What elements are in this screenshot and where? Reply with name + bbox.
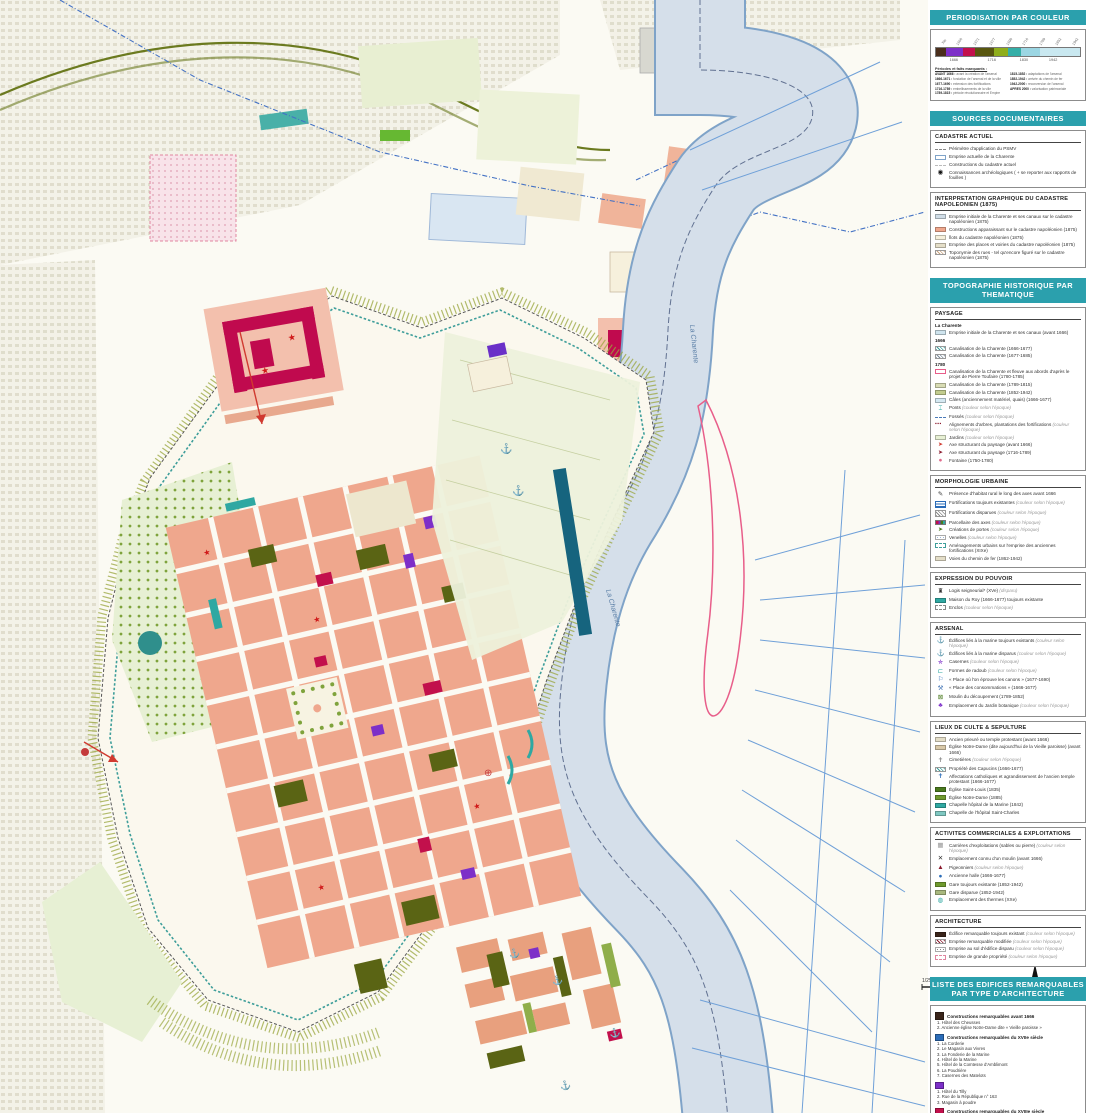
legend-item-note: (couleur selon l'époque) <box>989 527 1039 532</box>
legend-item: Câles (anciennement matériel, quais) (16… <box>935 397 1081 403</box>
legend-item: Canalisation de la Charente et fleuve au… <box>935 369 1081 380</box>
radoub-icon: ⊏ <box>935 669 946 675</box>
legend-item: ⚓Édifices liés à la marine disparus (cou… <box>935 651 1081 658</box>
legend-item: Ancien prieuré ou temple protestant (ava… <box>935 737 1081 743</box>
legend-item-label: Emprise initiale de la Charente et ses c… <box>949 214 1081 225</box>
legend-item: Constructions apparaissant sur le cadast… <box>935 227 1081 233</box>
legend-swatch <box>935 346 946 351</box>
legend-item-note: (couleur selon l'époque) <box>1007 954 1057 959</box>
legend-item-note: (couleur selon l'époque) <box>973 865 1023 870</box>
legend-item-label: Moulin du découpement (1789-1852) <box>949 694 1024 700</box>
bridge-icon: ⌶ <box>935 406 946 412</box>
legend-item-label: Ponts (couleur selon l'époque) <box>949 405 1011 411</box>
legend-item: Canalisation de la Charente (1852-1942) <box>935 390 1081 396</box>
legend-item: ➤Créations de portes (couleur selon l'ép… <box>935 527 1081 533</box>
arrow-icon: ➤ <box>935 443 946 448</box>
target-icon: ◉ <box>935 170 946 176</box>
legend-section: EXPRESSION DU POUVOIR♜Logis seigneurial*… <box>930 572 1086 617</box>
legend-swatch <box>935 417 946 418</box>
edifice-list-item: 7. Casernes des Matelots <box>937 1073 1081 1078</box>
legend-item-label: « Place des consommations » (1666-1677) <box>949 685 1037 691</box>
legend-swatch <box>935 250 946 255</box>
legend-item: Toponymie des rues - tel qu'encore figur… <box>935 250 1081 261</box>
legend-item-label: Casernes (couleur selon l'époque) <box>949 659 1019 665</box>
period-year-label: 1716 <box>988 58 996 62</box>
legend-item: Fossés (couleur selon l'époque) <box>935 414 1081 420</box>
legend-swatch <box>935 214 946 219</box>
legend-section-title: INTERPRETATION GRAPHIQUE DU CADASTRE NAP… <box>935 196 1081 211</box>
legend-item-label: Canalisation de la Charente (1852-1942) <box>949 390 1032 396</box>
legend-item: ◍Emplacement des thermes (XXe) <box>935 897 1081 904</box>
legend-item: ➤Axe structurant du paysage (avant 1666) <box>935 442 1081 448</box>
circle-icon: ● <box>935 874 946 880</box>
legend-item-label: Ancien prieuré ou temple protestant (ava… <box>949 737 1049 743</box>
legend-item-label: Câles (anciennement matériel, quais) (16… <box>949 397 1051 403</box>
periodisation-footnote-title: Périodes et faits marquants : <box>935 67 1081 71</box>
legend-item: Enclos (couleur selon l'époque) <box>935 605 1081 611</box>
periodisation-footnote: 1789-1815 : période révolutionnaire et E… <box>935 91 1006 95</box>
legend-item-label: Édifice remarquable toujours existant (c… <box>949 931 1075 937</box>
legend-item: Jardins (couleur selon l'époque) <box>935 435 1081 441</box>
legend-header: TOPOGRAPHIE HISTORIQUE PAR THEMATIQUE <box>930 278 1086 303</box>
legend-header: SOURCES DOCUMENTAIRES <box>930 111 1086 126</box>
mill-icon: ⊠ <box>935 695 946 701</box>
legend-item-label: Emprise au sol d'édifice disparu (couleu… <box>949 946 1064 952</box>
legend-header-periodisation: PERIODISATION PAR COULEUR <box>930 10 1086 25</box>
legend-item-label: Gare disparue (1852-1942) <box>949 890 1004 896</box>
edifice-group-swatch <box>935 1108 944 1113</box>
legend-swatch <box>935 745 946 750</box>
edifice-group-title: Constructions remarquables du XVIIIe siè… <box>947 1109 1044 1113</box>
legend-item: Venelles (couleur selon l'époque) <box>935 535 1081 541</box>
periodisation-footnote: 1852-1942 : arrivée du chemin de fer <box>1010 77 1081 81</box>
edifice-group: Constructions remarquables avant 16661. … <box>935 1012 1081 1030</box>
legend-item: Emprise remarquable modifiée (couleur se… <box>935 939 1081 945</box>
pink-enclosure <box>150 155 236 241</box>
edifice-list-item: 2. Ancienne église Notre-Dame dite « Vie… <box>937 1025 1081 1030</box>
legend-subheader: 1780 <box>935 362 1081 367</box>
edifice-group-title: Constructions remarquables du XVIIe sièc… <box>947 1035 1043 1040</box>
periodisation-color-bar <box>935 47 1081 57</box>
legend-item: Chapelle hôpital de la Marine (1842) <box>935 802 1081 808</box>
legend-item: Périmètre d'application du PSMV <box>935 146 1081 152</box>
legend-swatch <box>935 383 946 388</box>
period-year-label: 1942 <box>1049 58 1057 62</box>
hammer-icon: ⚒ <box>935 686 946 692</box>
arrow-icon: ➤ <box>935 528 946 533</box>
legend-swatch <box>935 243 946 248</box>
legend-item: ⊏Formes de radoub (couleur selon l'époqu… <box>935 668 1081 675</box>
legend-item: ⚓Édifices liés à la marine toujours exis… <box>935 638 1081 649</box>
legend-item-label: Emprise initiale de la Charente et ses c… <box>949 330 1068 336</box>
legend-item: Église Notre-Dame (1885) <box>935 795 1081 801</box>
legend-swatch <box>935 890 946 895</box>
legend-item-label: Chapelle hôpital de la Marine (1842) <box>949 802 1023 808</box>
legend-item: Aménagements urbains sur l'emprise des a… <box>935 543 1081 554</box>
legend-item: ▲Pigeonniers (couleur selon l'époque) <box>935 865 1081 872</box>
legend-item-note: (couleur selon l'époque) <box>961 405 1011 410</box>
map-poster: { "map": { "river_label": "La Charente",… <box>0 0 1100 1113</box>
legend-subheader: 1666 <box>935 338 1081 343</box>
legend-swatch <box>935 939 946 944</box>
periodisation-top-labels: XIe16661671167716901716178918521942 <box>935 33 1081 47</box>
anchor-icon: ⚓ <box>935 651 946 657</box>
legend-section: ACTIVITES COMMERCIALES & EXPLOITATIONS▦C… <box>930 827 1086 911</box>
legend-item: Emprise de grande propriété (couleur sel… <box>935 954 1081 960</box>
periodisation-footnote: 1677-1690 : extension des fortifications <box>935 82 1006 86</box>
legend-item-label: Présence d'habitat rural le long des axe… <box>949 491 1056 497</box>
period-color-segment <box>936 48 946 56</box>
legend-item-label: Constructions du cadastre actuel <box>949 162 1016 168</box>
legend-item-note: (couleur selon l'époque) <box>949 843 1065 854</box>
period-year-label: 1830 <box>1020 58 1028 62</box>
edifice-group-header <box>935 1082 1081 1090</box>
svg-text:★: ★ <box>287 332 297 343</box>
legend-item: Propriété des Capucins (1666-1677) <box>935 766 1081 772</box>
legend-item-label: Formes de radoub (couleur selon l'époque… <box>949 668 1037 674</box>
edifice-group: Constructions remarquables du XVIIe sièc… <box>935 1034 1081 1079</box>
legend-item: Fortifications disparues (couleur selon … <box>935 510 1081 518</box>
legend-item-label: Propriété des Capucins (1666-1677) <box>949 766 1023 772</box>
legend-item-label: Aménagements urbains sur l'emprise des a… <box>949 543 1081 554</box>
legend-item: Parcellaire des axes (couleur selon l'ép… <box>935 520 1081 526</box>
legend-item-label: Pigeonniers (couleur selon l'époque) <box>949 865 1023 871</box>
legend-section-title: CADASTRE ACTUEL <box>935 134 1081 143</box>
legend-swatch <box>935 787 946 792</box>
legend-item-label: Cimetières (couleur selon l'époque) <box>949 757 1021 763</box>
legend-swatch <box>935 155 946 160</box>
legend-swatch <box>935 520 946 525</box>
legend-swatch <box>935 605 946 610</box>
legend-item-label: Venelles (couleur selon l'époque) <box>949 535 1017 541</box>
arrow-icon: ➤ <box>935 451 946 456</box>
legend-section-title: ACTIVITES COMMERCIALES & EXPLOITATIONS <box>935 831 1081 840</box>
legend-item-label: Ancienne halle (1666-1677) <box>949 873 1005 879</box>
legend-swatch <box>935 330 946 335</box>
legend-item-label: Axe structurant du paysage (avant 1666) <box>949 442 1032 448</box>
legend-swatch <box>935 435 946 440</box>
legend-item-note: (couleur selon l'époque) <box>949 638 1064 649</box>
legend-item-label: Fossés (couleur selon l'époque) <box>949 414 1014 420</box>
legend-item-label: Église Notre-Dame (dite aujourd'hui de l… <box>949 744 1081 755</box>
legend-item: Maison du Roy (1666-1677) toujours exist… <box>935 597 1081 603</box>
legend-swatch <box>935 398 946 403</box>
legend-swatch <box>935 955 946 960</box>
legend-item-label: Emplacement du Jardin botanique (couleur… <box>949 703 1069 709</box>
legend-item: ♣Emplacement du Jardin botanique (couleu… <box>935 703 1081 710</box>
legend-header-liste: LISTE DES EDIFICES REMARQUABLES PAR TYPE… <box>930 977 1086 1002</box>
legend-item-note: (couleur selon l'époque) <box>963 605 1013 610</box>
legend-item-label: Gare toujours existante (1852-1942) <box>949 882 1023 888</box>
legend-item-label: Fontaine (1750-1780) <box>949 458 993 464</box>
cross-icon: ✕ <box>935 856 946 862</box>
legend-item-label: Canalisation de la Charente (1666-1677) <box>949 346 1032 352</box>
legend-item: ✯Casernes (couleur selon l'époque) <box>935 659 1081 666</box>
legend-item: Emprise des places et voiries du cadastr… <box>935 242 1081 248</box>
legend-item: ◉Connaissances archéologiques ( + se rep… <box>935 170 1081 181</box>
periodisation-footnote: 1815-1852 : adaptations de l'arsenal <box>1010 72 1081 76</box>
pen-icon: ✎ <box>935 492 946 498</box>
tree-row-icon: ▪▪▪ <box>935 422 946 427</box>
legend-item-note: (couleur selon l'époque) <box>987 668 1037 673</box>
legend-item-label: Alignements d'arbres, plantations des fo… <box>949 422 1081 433</box>
legend-item: Église Saint-Louis (1835) <box>935 787 1081 793</box>
legend-item: Emprise au sol d'édifice disparu (couleu… <box>935 946 1081 952</box>
legend-item-label: Affectations catholiques et agrandisseme… <box>949 774 1081 785</box>
legend-item-label: Jardins (couleur selon l'époque) <box>949 435 1014 441</box>
legend-item: ▦Carrières d'exploitations (sables ou pi… <box>935 843 1081 854</box>
period-year-label: 1666 <box>950 58 958 62</box>
legend-item-note: (couleur selon l'époque) <box>949 422 1069 433</box>
legend-panel: PERIODISATION PAR COULEUR XIe16661671167… <box>930 10 1086 1113</box>
map-graphics: La Charente La Charente <box>0 0 928 1113</box>
legend-item: ✎Présence d'habitat rural le long des ax… <box>935 491 1081 498</box>
svg-text:★: ★ <box>260 365 270 376</box>
legend-item-label: Fortifications toujours existantes (coul… <box>949 500 1065 506</box>
legend-swatch <box>935 947 946 952</box>
legend-item-label: Église Notre-Dame (1885) <box>949 795 1002 801</box>
edifice-group: Constructions remarquables du XVIIIe siè… <box>935 1108 1081 1113</box>
legend-swatch <box>935 598 946 603</box>
quarry-icon: ▦ <box>935 843 946 849</box>
svg-text:⚓: ⚓ <box>500 442 512 455</box>
legend-item-label: Emplacement connu d'un moulin (avant 166… <box>949 856 1043 862</box>
legend-swatch <box>935 369 946 374</box>
legend-item-label: Édifices liés à la marine disparus (coul… <box>949 651 1066 657</box>
legend-item: Gare toujours existante (1852-1942) <box>935 882 1081 888</box>
fountain-icon: ● <box>935 458 946 464</box>
legend-item-note: (couleur selon l'époque) <box>1012 939 1062 944</box>
legend-item-note: (disparu) <box>998 588 1017 593</box>
star-icon: ✯ <box>935 660 946 666</box>
legend-item-label: Îlots du cadastre napoléonien (1875) <box>949 235 1024 241</box>
legend-item: ⊠Moulin du découpement (1789-1852) <box>935 694 1081 701</box>
legend-item: Gare disparue (1852-1942) <box>935 890 1081 896</box>
legend-section-title: EXPRESSION DU POUVOIR <box>935 576 1081 585</box>
legend-section: MORPHOLOGIE URBAINE✎Présence d'habitat r… <box>930 475 1086 568</box>
legend-item-label: Canalisation de la Charente et fleuve au… <box>949 369 1081 380</box>
legend-swatch <box>935 795 946 800</box>
legend-item-label: Carrières d'exploitations (sables ou pie… <box>949 843 1081 854</box>
legend-item: ▪▪▪Alignements d'arbres, plantations des… <box>935 422 1081 433</box>
legend-item-label: Église Saint-Louis (1835) <box>949 787 1000 793</box>
legend-item: ⌶Ponts (couleur selon l'époque) <box>935 405 1081 412</box>
legend-swatch <box>935 165 946 166</box>
edifice-group-title: Constructions remarquables avant 1666 <box>947 1014 1034 1019</box>
legend-item: ●Ancienne halle (1666-1677) <box>935 873 1081 880</box>
legend-item-note: (couleur selon l'époque) <box>990 520 1040 525</box>
legend-item: Voies du chemin de fer (1862-1942) <box>935 556 1081 562</box>
legend-item-label: Emprise remarquable modifiée (couleur se… <box>949 939 1062 945</box>
edifice-group-header: Constructions remarquables du XVIIIe siè… <box>935 1108 1081 1113</box>
legend-item-label: Emprise actuelle de la Charente <box>949 154 1014 160</box>
legend-item: ⚐« Place où l'on éprouve les canons » (1… <box>935 677 1081 684</box>
legend-section: PAYSAGELa CharenteEmprise initiale de la… <box>930 307 1086 472</box>
legend-swatch <box>935 556 946 561</box>
legend-item: Canalisation de la Charente (1677-1685) <box>935 353 1081 359</box>
legend-section: LIEUX DE CULTE & SEPULTUREAncien prieuré… <box>930 721 1086 823</box>
edifice-group-header: Constructions remarquables avant 1666 <box>935 1012 1081 1020</box>
legend-item-label: Voies du chemin de fer (1862-1942) <box>949 556 1022 562</box>
legend-item-note: (couleur selon l'époque) <box>1016 651 1066 656</box>
legend-item-label: Axe structurant du paysage (1716-1789) <box>949 450 1031 456</box>
legend-swatch <box>935 510 946 517</box>
legend-item: ✝Affectations catholiques et agrandissem… <box>935 774 1081 785</box>
legend-item-label: Canalisation de la Charente (1677-1685) <box>949 353 1032 359</box>
legend-section-title: PAYSAGE <box>935 311 1081 320</box>
thermes-icon: ◍ <box>935 898 946 904</box>
legend-item-label: Édifices liés à la marine toujours exist… <box>949 638 1081 649</box>
edifice-group-swatch <box>935 1034 944 1042</box>
legend-item: ✕Emplacement connu d'un moulin (avant 16… <box>935 856 1081 863</box>
legend-item: ✝Cimetières (couleur selon l'époque) <box>935 757 1081 764</box>
legend-item-note: (couleur selon l'époque) <box>964 414 1014 419</box>
periodisation-footnote: AVANT 1666 : avant la création de l'arse… <box>935 72 1006 76</box>
periodisation-footnote: APRES 2000 : valorisation patrimoniale <box>1010 87 1081 91</box>
legend-item-label: Emprise de grande propriété (couleur sel… <box>949 954 1057 960</box>
legend-item: ♜Logis seigneurial* (XVe) (disparu) <box>935 588 1081 595</box>
legend-item: Canalisation de la Charente (1789-1815) <box>935 382 1081 388</box>
legend-swatch <box>935 811 946 816</box>
legend-swatch <box>935 354 946 359</box>
legend-section-title: ARSENAL <box>935 626 1081 635</box>
legend-swatch <box>935 390 946 395</box>
legend-swatch <box>935 767 946 772</box>
legend-item-label: Enclos (couleur selon l'époque) <box>949 605 1013 611</box>
legend-item-label: Parcellaire des axes (couleur selon l'ép… <box>949 520 1041 526</box>
legend-item-label: Fortifications disparues (couleur selon … <box>949 510 1046 516</box>
periodisation-bottom-labels: 1666171618301942 <box>935 57 1081 65</box>
periodisation-footnotes: AVANT 1666 : avant la création de l'arse… <box>935 72 1081 96</box>
legend-item-label: « Place où l'on éprouve les canons » (16… <box>949 677 1050 683</box>
flag-icon: ⚐ <box>935 677 946 683</box>
legend-swatch <box>935 737 946 742</box>
legend-item: Édifice remarquable toujours existant (c… <box>935 931 1081 937</box>
legend-item-note: (couleur selon l'époque) <box>969 659 1019 664</box>
legend-item-label: Chapelle de l'hôpital Saint-Charles <box>949 810 1019 816</box>
legend-item: Canalisation de la Charente (1666-1677) <box>935 346 1081 352</box>
legend-item-note: (couleur selon l'époque) <box>996 510 1046 515</box>
station <box>380 130 410 141</box>
edifice-group-swatch <box>935 1012 944 1020</box>
legend-section-title: ARCHITECTURE <box>935 919 1081 928</box>
legend-swatch <box>935 882 946 887</box>
legend-item: Fortifications toujours existantes (coul… <box>935 500 1081 508</box>
palm-icon: ♣ <box>935 703 946 709</box>
legend-item-label: Logis seigneurial* (XVe) (disparu) <box>949 588 1017 594</box>
legend-item-label: Créations de portes (couleur selon l'épo… <box>949 527 1039 533</box>
legend-section-title: MORPHOLOGIE URBAINE <box>935 479 1081 488</box>
legend-item: Chapelle de l'hôpital Saint-Charles <box>935 810 1081 816</box>
cross-icon: ✝ <box>935 758 946 764</box>
legend-item-note: (couleur selon l'époque) <box>966 535 1016 540</box>
periodisation-footnote: 1716-1789 : embellissements de la ville <box>935 87 1006 91</box>
legend-item: Emprise initiale de la Charente et ses c… <box>935 330 1081 336</box>
legend-item-note: (couleur selon l'époque) <box>1014 946 1064 951</box>
legend-item-note: (couleur selon l'époque) <box>964 435 1014 440</box>
liste-edifices-box: Constructions remarquables avant 16661. … <box>930 1005 1086 1113</box>
edifice-group: 1. Hôtel du Tilly2. Rue de la République… <box>935 1082 1081 1106</box>
legend-item: ●Fontaine (1750-1780) <box>935 458 1081 465</box>
legend-item-label: Maison du Roy (1666-1677) toujours exist… <box>949 597 1043 603</box>
legend-swatch <box>935 149 946 150</box>
svg-text:⚓: ⚓ <box>512 484 524 497</box>
legend-subheader: La Charente <box>935 323 1081 328</box>
legend-item: ➤Axe structurant du paysage (1716-1789) <box>935 450 1081 456</box>
legend-section: ARSENAL⚓Édifices liés à la marine toujou… <box>930 622 1086 717</box>
legend-item-label: Toponymie des rues - tel qu'encore figur… <box>949 250 1081 261</box>
legend-swatch <box>935 501 946 508</box>
legend-item-label: Constructions apparaissant sur le cadast… <box>949 227 1077 233</box>
legend-section-title: LIEUX DE CULTE & SEPULTURE <box>935 725 1081 734</box>
periodisation-box: XIe16661671167716901716178918521942 1666… <box>930 29 1086 101</box>
edifice-group-header: Constructions remarquables du XVIIe sièc… <box>935 1034 1081 1042</box>
legend-section: CADASTRE ACTUELPérimètre d'application d… <box>930 130 1086 187</box>
legend-swatch <box>935 235 946 240</box>
anchor-icon: ⚓ <box>935 638 946 644</box>
legend-swatch <box>935 535 946 540</box>
legend-item: Emprise initiale de la Charente et ses c… <box>935 214 1081 225</box>
legend-item-label: Emprise des places et voiries du cadastr… <box>949 242 1075 248</box>
legend-item: Constructions du cadastre actuel <box>935 162 1081 168</box>
legend-item-label: Connaissances archéologiques ( + se repo… <box>949 170 1081 181</box>
legend-item-note: (couleur selon l'époque) <box>1025 931 1075 936</box>
legend-item-label: Emplacement des thermes (XXe) <box>949 897 1017 903</box>
periodisation-footnote: 1666-1671 : fondation de l'arsenal et de… <box>935 77 1006 81</box>
legend-item-note: (couleur selon l'époque) <box>971 757 1021 762</box>
legend-item: Emprise actuelle de la Charente <box>935 154 1081 160</box>
legend-item-label: Périmètre d'application du PSMV <box>949 146 1016 152</box>
periodisation-footnote: 1942-2000 : reconversion de l'arsenal <box>1010 82 1081 86</box>
legend-item-note: (couleur selon l'époque) <box>1019 703 1069 708</box>
legend-section: ARCHITECTUREÉdifice remarquable toujours… <box>930 915 1086 967</box>
legend-item-label: Canalisation de la Charente (1789-1815) <box>949 382 1032 388</box>
legend-swatch <box>935 543 946 548</box>
legend-item: Église Notre-Dame (dite aujourd'hui de l… <box>935 744 1081 755</box>
svg-text:⊕: ⊕ <box>484 768 492 779</box>
cross-icon: ✝ <box>935 774 946 780</box>
statue-icon: ♜ <box>935 589 946 595</box>
legend-section: INTERPRETATION GRAPHIQUE DU CADASTRE NAP… <box>930 192 1086 268</box>
legend-swatch <box>935 227 946 232</box>
period-color-segment <box>946 48 963 56</box>
triangle-icon: ▲ <box>935 865 946 871</box>
legend-item-note: (couleur selon l'époque) <box>1015 500 1065 505</box>
legend-swatch <box>935 803 946 808</box>
edifice-list-item: 3. Magasin à poudre <box>937 1100 1081 1105</box>
legend-item: Îlots du cadastre napoléonien (1875) <box>935 235 1081 241</box>
edifice-group-swatch <box>935 1082 944 1090</box>
legend-swatch <box>935 932 946 937</box>
legend-item: ⚒« Place des consommations » (1666-1677) <box>935 685 1081 692</box>
